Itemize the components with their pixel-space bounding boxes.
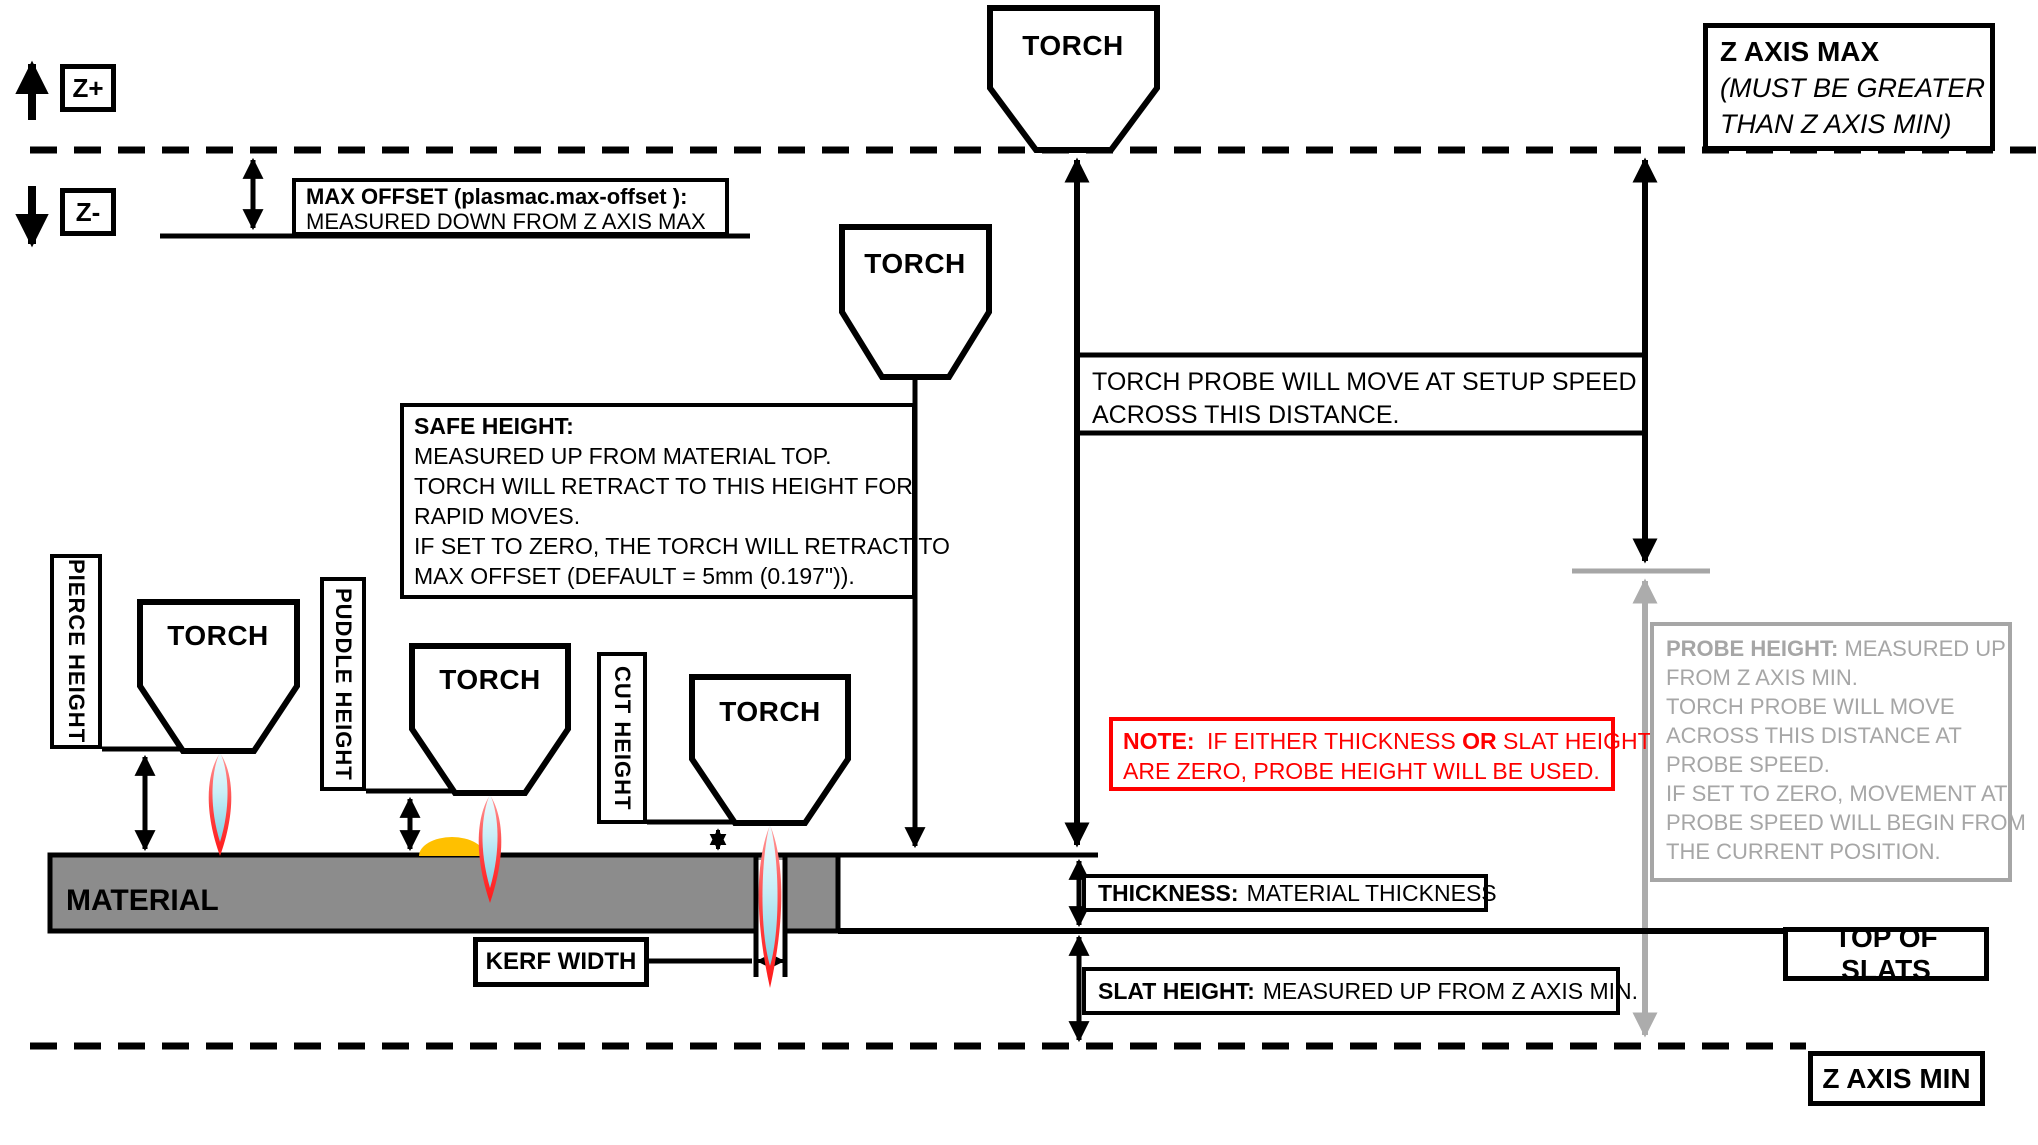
max-offset-box: MAX OFFSET (plasmac.max-offset ): MEASUR… bbox=[292, 178, 729, 236]
thickness-box: THICKNESS: MATERIAL THICKNESS bbox=[1082, 874, 1488, 912]
puddle-height-label: PUDDLE HEIGHT bbox=[320, 577, 366, 791]
probe-height-title: PROBE HEIGHT: bbox=[1666, 636, 1838, 661]
note-mid-2: SLAT HEIGHT bbox=[1503, 728, 1652, 754]
slat-height-box: SLAT HEIGHT: MEASURED UP FROM Z AXIS MIN… bbox=[1082, 967, 1620, 1015]
molten-puddle bbox=[419, 837, 485, 856]
probe-height-title-rest: MEASURED UP bbox=[1844, 636, 2005, 661]
max-offset-body: MEASURED DOWN FROM Z AXIS MAX bbox=[306, 209, 715, 234]
cut-height-label: CUT HEIGHT bbox=[597, 652, 647, 824]
probe-height-line-5: IF SET TO ZERO, MOVEMENT AT bbox=[1666, 779, 1996, 808]
slat-height-body: MEASURED UP FROM Z AXIS MIN. bbox=[1263, 978, 1638, 1005]
probe-height-line-2: TORCH PROBE WILL MOVE bbox=[1666, 692, 1996, 721]
safe-height-line-5: MAX OFFSET (DEFAULT = 5mm (0.197")). bbox=[414, 561, 902, 591]
z-axis-max-box: Z AXIS MAX (MUST BE GREATER THAN Z AXIS … bbox=[1703, 23, 1995, 151]
torch-probe-note-line-1: TORCH PROBE WILL MOVE AT SETUP SPEED bbox=[1092, 366, 1637, 399]
safe-height-line-3: RAPID MOVES. bbox=[414, 501, 902, 531]
probe-height-line-3: ACROSS THIS DISTANCE AT bbox=[1666, 721, 1996, 750]
z-axis-min-box: Z AXIS MIN bbox=[1808, 1051, 1985, 1106]
material-label: MATERIAL bbox=[66, 884, 219, 918]
note-prefix: NOTE: bbox=[1123, 728, 1195, 754]
z-plus-box: Z+ bbox=[60, 64, 116, 112]
probe-height-box: PROBE HEIGHT: MEASURED UP FROM Z AXIS MI… bbox=[1650, 622, 2012, 882]
plasmac-height-diagram: TORCH TORCH TORCH TORCH TORCH Z+ Z- MAX … bbox=[0, 0, 2038, 1145]
probe-height-line-4: PROBE SPEED. bbox=[1666, 750, 1996, 779]
pierce-height-label: PIERCE HEIGHT bbox=[50, 554, 102, 749]
safe-height-line-2: TORCH WILL RETRACT TO THIS HEIGHT FOR bbox=[414, 471, 902, 501]
pierce-flame bbox=[209, 752, 232, 856]
kerf-width-box: KERF WIDTH bbox=[473, 937, 649, 987]
slat-height-title: SLAT HEIGHT: bbox=[1098, 978, 1255, 1005]
z-axis-max-note-1: (MUST BE GREATER bbox=[1720, 70, 1978, 106]
torch-label-zmax: TORCH bbox=[993, 30, 1153, 62]
probe-height-line-7: THE CURRENT POSITION. bbox=[1666, 837, 1996, 866]
probe-height-line-1: FROM Z AXIS MIN. bbox=[1666, 663, 1996, 692]
thickness-body: MATERIAL THICKNESS bbox=[1247, 880, 1497, 907]
z-axis-max-title: Z AXIS MAX bbox=[1720, 34, 1978, 70]
max-offset-title: MAX OFFSET (plasmac.max-offset ): bbox=[306, 184, 715, 209]
z-minus-box: Z- bbox=[60, 188, 116, 236]
thickness-title: THICKNESS: bbox=[1098, 880, 1239, 907]
safe-height-line-1: MEASURED UP FROM MATERIAL TOP. bbox=[414, 441, 902, 471]
safe-height-box: SAFE HEIGHT: MEASURED UP FROM MATERIAL T… bbox=[400, 403, 916, 599]
z-axis-max-note-2: THAN Z AXIS MIN) bbox=[1720, 106, 1978, 142]
probe-height-line-6: PROBE SPEED WILL BEGIN FROM bbox=[1666, 808, 1996, 837]
note-bold-or: OR bbox=[1462, 728, 1497, 754]
top-of-slats-box: TOP OF SLATS bbox=[1783, 927, 1989, 981]
torch-label-cut: TORCH bbox=[691, 696, 849, 728]
diagram-drawing-layer bbox=[0, 0, 2038, 1145]
note-box: NOTE: IF EITHER THICKNESS OR SLAT HEIGHT… bbox=[1109, 717, 1615, 791]
torch-label-safe: TORCH bbox=[840, 248, 990, 280]
torch-label-puddle: TORCH bbox=[411, 664, 569, 696]
torch-label-pierce: TORCH bbox=[139, 620, 297, 652]
note-mid-1: IF EITHER THICKNESS bbox=[1207, 728, 1456, 754]
torch-probe-note: TORCH PROBE WILL MOVE AT SETUP SPEED ACR… bbox=[1092, 366, 1637, 432]
torch-probe-note-line-2: ACROSS THIS DISTANCE. bbox=[1092, 399, 1637, 432]
safe-height-title: SAFE HEIGHT: bbox=[414, 411, 902, 441]
note-line-2: ARE ZERO, PROBE HEIGHT WILL BE USED. bbox=[1123, 756, 1601, 786]
safe-height-line-4: IF SET TO ZERO, THE TORCH WILL RETRACT T… bbox=[414, 531, 902, 561]
